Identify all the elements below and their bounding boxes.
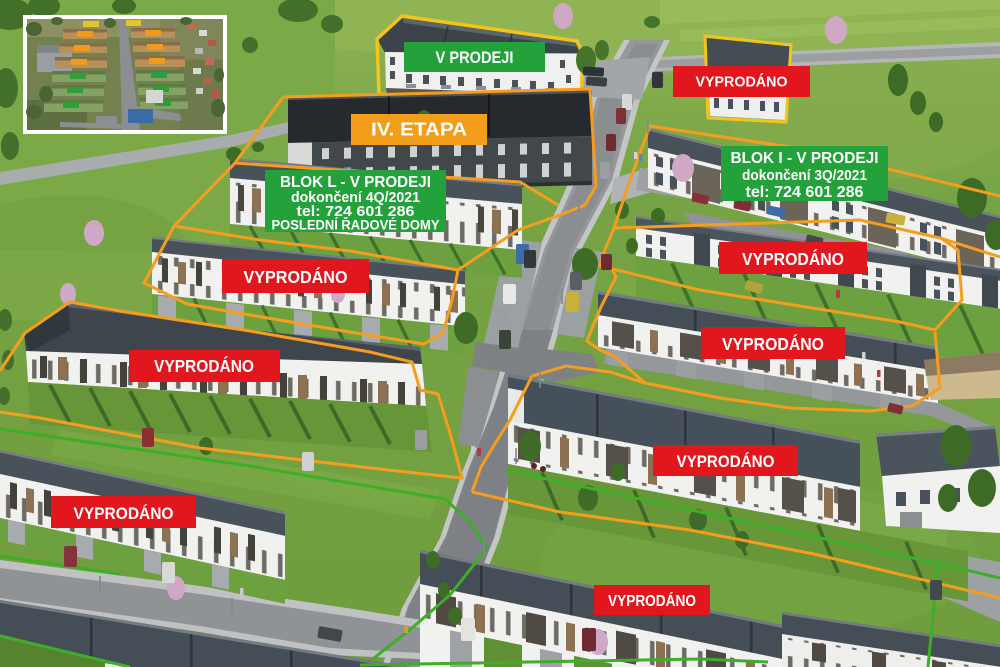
svg-text:VYPRODÁNO: VYPRODÁNO bbox=[74, 504, 174, 523]
svg-text:VYPRODÁNO: VYPRODÁNO bbox=[154, 355, 254, 376]
svg-text:POSLEDNÍ ŘADOVÉ DOMY: POSLEDNÍ ŘADOVÉ DOMY bbox=[272, 218, 440, 233]
svg-text:BLOK I - V PRODEJI: BLOK I - V PRODEJI bbox=[731, 150, 879, 167]
svg-text:dokončení 3Q/2021: dokončení 3Q/2021 bbox=[742, 168, 867, 184]
svg-text:VYPRODÁNO: VYPRODÁNO bbox=[696, 74, 788, 91]
svg-text:VYPRODÁNO: VYPRODÁNO bbox=[677, 452, 775, 471]
svg-text:VYPRODÁNO: VYPRODÁNO bbox=[608, 593, 696, 610]
svg-text:tel: 724 601 286: tel: 724 601 286 bbox=[746, 184, 864, 201]
svg-text:VYPRODÁNO: VYPRODÁNO bbox=[244, 266, 348, 287]
svg-text:VYPRODÁNO: VYPRODÁNO bbox=[722, 333, 824, 354]
svg-text:BLOK L - V PRODEJI: BLOK L - V PRODEJI bbox=[280, 174, 431, 191]
svg-text:VYPRODÁNO: VYPRODÁNO bbox=[742, 248, 844, 269]
svg-text:IV. ETAPA: IV. ETAPA bbox=[371, 120, 467, 140]
svg-text:V PRODEJI: V PRODEJI bbox=[436, 48, 514, 67]
